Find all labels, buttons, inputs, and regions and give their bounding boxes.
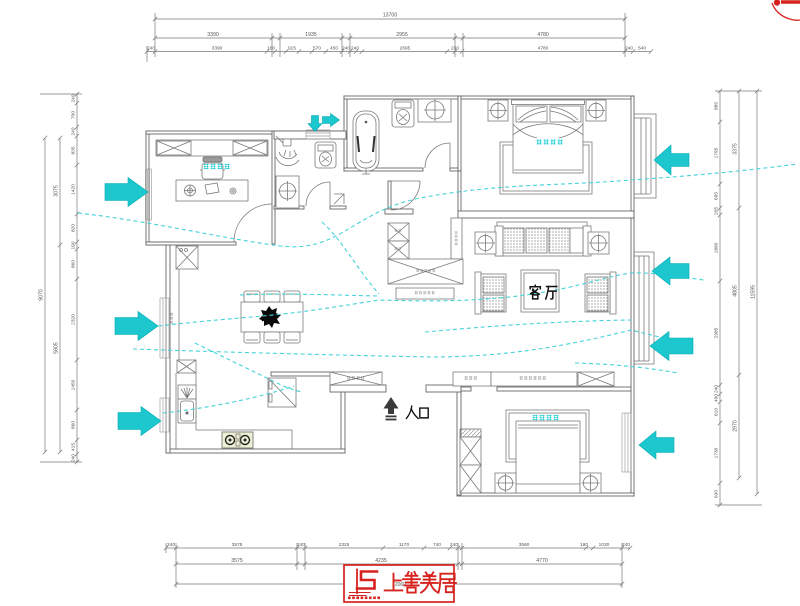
svg-text:240: 240 (297, 542, 305, 548)
svg-text:1030: 1030 (599, 542, 610, 548)
svg-text:2695: 2695 (400, 45, 411, 51)
svg-text:885: 885 (714, 102, 720, 110)
svg-text:240: 240 (450, 542, 458, 548)
svg-text:5805: 5805 (54, 342, 60, 354)
svg-text:1170: 1170 (399, 542, 410, 548)
svg-text:240: 240 (71, 127, 77, 135)
svg-text:630: 630 (714, 490, 720, 498)
svg-text:1450: 1450 (71, 379, 77, 390)
svg-text:740: 740 (433, 542, 441, 548)
svg-text:3575: 3575 (231, 558, 243, 564)
svg-text:3390: 3390 (207, 32, 219, 38)
svg-text:1890: 1890 (714, 242, 720, 253)
svg-text:9070: 9070 (39, 289, 45, 301)
svg-text:570: 570 (313, 45, 321, 51)
svg-text:610: 610 (714, 408, 720, 416)
svg-text:190: 190 (71, 241, 77, 249)
svg-text:240: 240 (71, 94, 77, 102)
svg-text:3075: 3075 (54, 185, 60, 197)
svg-text:4235: 4235 (375, 558, 387, 564)
svg-text:4780: 4780 (538, 45, 549, 51)
svg-text:450: 450 (330, 45, 338, 51)
svg-text:240: 240 (167, 542, 175, 548)
svg-text:1420: 1420 (71, 184, 77, 195)
svg-text:240: 240 (351, 45, 359, 51)
svg-text:240: 240 (625, 45, 633, 51)
svg-text:415: 415 (71, 443, 77, 451)
svg-text:2325: 2325 (339, 542, 350, 548)
svg-text:915: 915 (288, 45, 296, 51)
svg-text:540: 540 (638, 45, 646, 51)
svg-text:2970: 2970 (733, 420, 739, 432)
svg-text:3575: 3575 (232, 542, 243, 548)
svg-text:2955: 2955 (396, 32, 408, 38)
svg-text:205: 205 (714, 207, 720, 215)
svg-text:3375: 3375 (733, 143, 739, 155)
svg-text:240: 240 (714, 385, 720, 393)
svg-text:240: 240 (71, 454, 77, 462)
svg-text:835: 835 (71, 146, 77, 154)
svg-text:860: 860 (71, 421, 77, 429)
svg-text:820: 820 (71, 224, 77, 232)
svg-text:695: 695 (714, 192, 720, 200)
svg-text:1730: 1730 (714, 447, 720, 458)
svg-text:240: 240 (342, 45, 350, 51)
svg-text:4770: 4770 (536, 558, 548, 564)
svg-text:3560: 3560 (519, 542, 530, 548)
svg-text:2985: 2985 (714, 327, 720, 338)
svg-text:13700: 13700 (383, 13, 398, 19)
svg-text:3390: 3390 (212, 45, 223, 51)
svg-text:180: 180 (580, 542, 588, 548)
svg-text:4805: 4805 (733, 285, 739, 297)
svg-text:11595: 11595 (751, 285, 757, 299)
svg-text:2320: 2320 (71, 314, 77, 325)
svg-text:160: 160 (267, 45, 275, 51)
svg-text:240: 240 (622, 542, 630, 548)
svg-text:1935: 1935 (305, 32, 317, 38)
svg-text:860: 860 (71, 260, 77, 268)
svg-text:4780: 4780 (537, 32, 549, 38)
svg-text:490: 490 (714, 394, 720, 402)
svg-text:240: 240 (147, 45, 155, 51)
svg-text:700: 700 (71, 111, 77, 119)
svg-text:1795: 1795 (714, 147, 720, 158)
